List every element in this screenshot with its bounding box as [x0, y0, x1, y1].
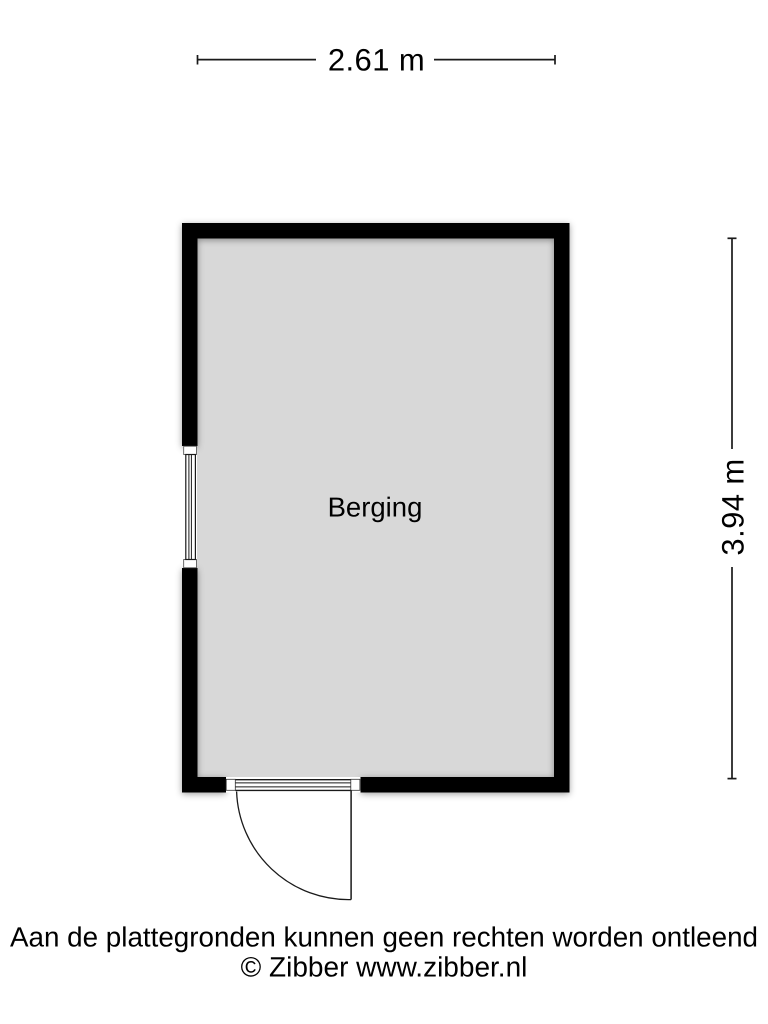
svg-text:3.94 m: 3.94 m [716, 458, 751, 555]
svg-text:Aan de plattegronden kunnen ge: Aan de plattegronden kunnen geen rechten… [10, 921, 758, 952]
svg-text:Berging: Berging [328, 491, 423, 522]
svg-text:2.61 m: 2.61 m [328, 43, 425, 78]
svg-text:© Zibber www.zibber.nl: © Zibber www.zibber.nl [241, 951, 528, 982]
